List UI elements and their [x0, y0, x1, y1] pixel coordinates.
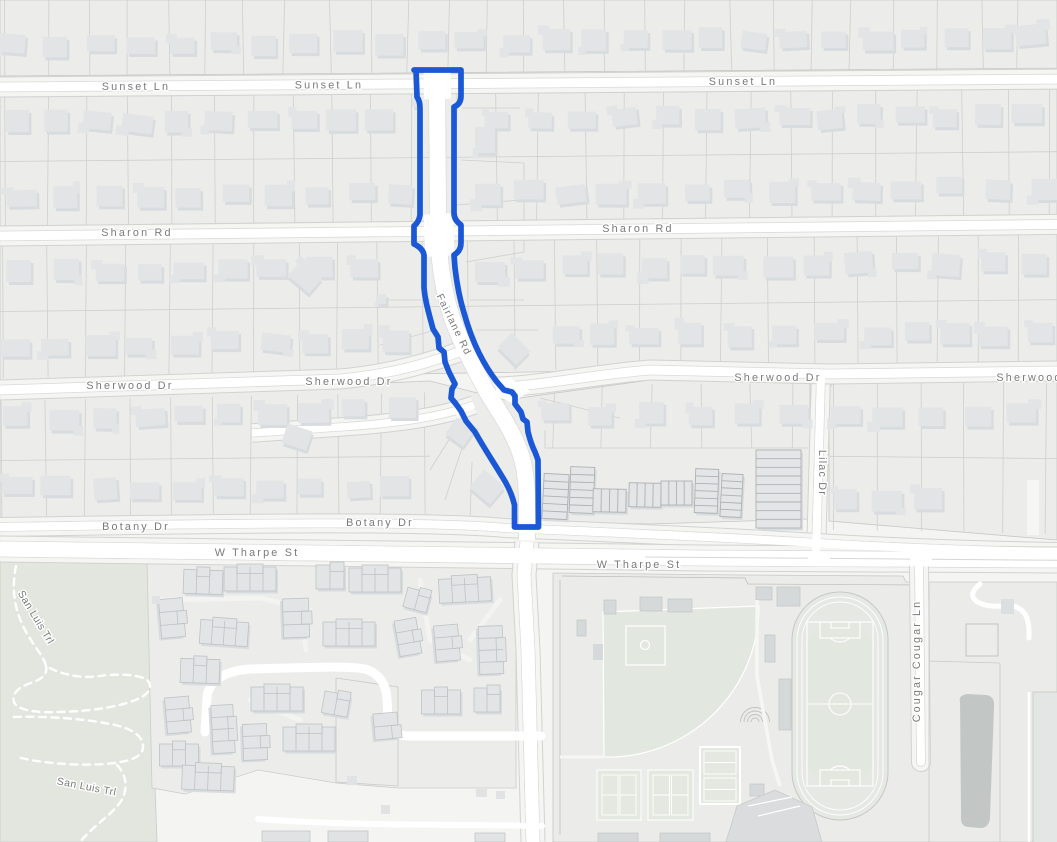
svg-text:Sunset Ln: Sunset Ln — [102, 81, 170, 93]
svg-text:Sharon Rd: Sharon Rd — [602, 223, 673, 235]
svg-text:Botany Dr: Botany Dr — [346, 517, 414, 529]
svg-text:Sherwood Dr: Sherwood Dr — [734, 372, 821, 384]
svg-text:Sherwood Dr: Sherwood Dr — [86, 380, 173, 392]
svg-text:Sharon Rd: Sharon Rd — [101, 227, 172, 239]
svg-text:Sunset Ln: Sunset Ln — [709, 76, 777, 88]
svg-text:Lilac Dr: Lilac Dr — [816, 450, 828, 496]
svg-text:W Tharpe St: W Tharpe St — [215, 547, 300, 559]
svg-text:Sunset Ln: Sunset Ln — [295, 80, 363, 92]
svg-text:Sherwood Dr: Sherwood Dr — [996, 372, 1057, 384]
svg-text:Botany Dr: Botany Dr — [102, 521, 170, 533]
svg-text:W Tharpe St: W Tharpe St — [597, 559, 682, 571]
svg-text:Cougar Cougar Ln: Cougar Cougar Ln — [911, 600, 923, 722]
svg-text:Sherwood Dr: Sherwood Dr — [305, 376, 392, 388]
